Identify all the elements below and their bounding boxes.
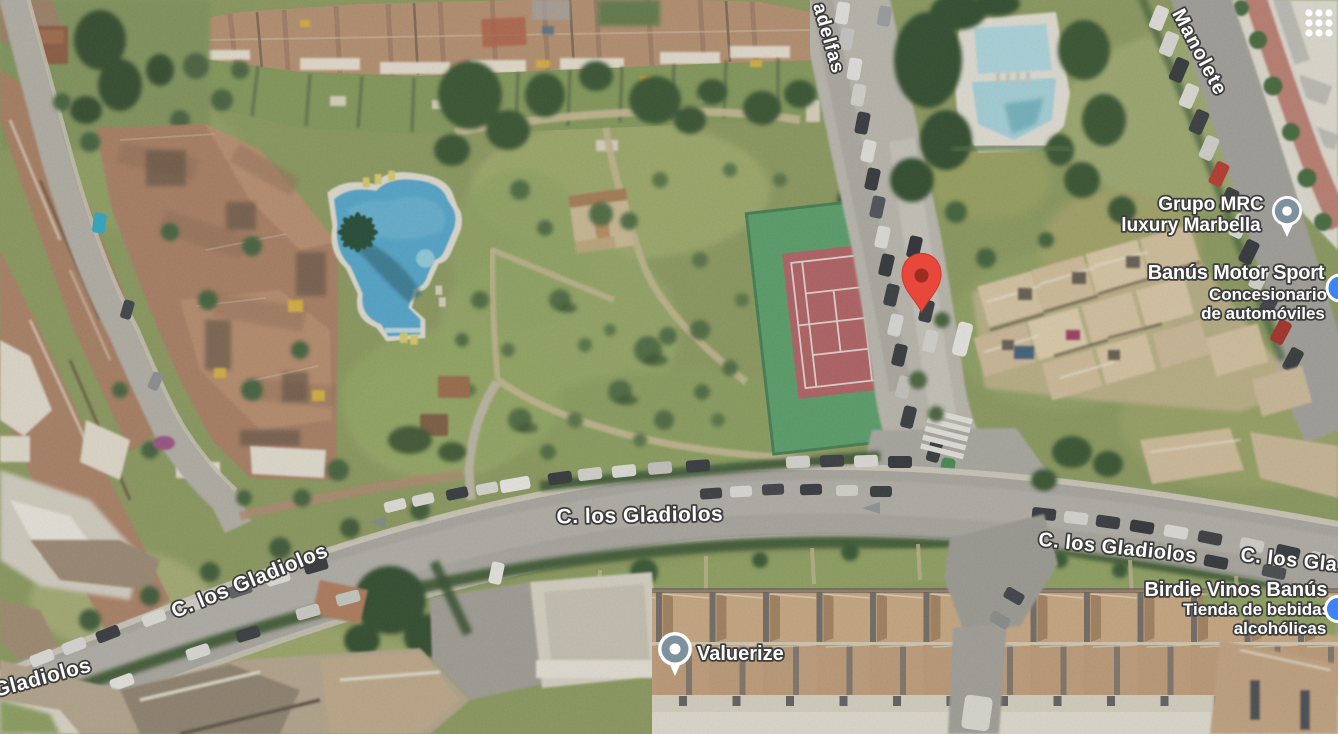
svg-text:luxury Marbella: luxury Marbella — [1121, 215, 1261, 236]
svg-text:alcohólicas: alcohólicas — [1234, 619, 1327, 638]
svg-text:Birdie Vinos Banús: Birdie Vinos Banús — [1144, 579, 1327, 601]
svg-text:Grupo MRC: Grupo MRC — [1158, 194, 1264, 215]
svg-text:Banús Motor Sport: Banús Motor Sport — [1148, 262, 1325, 284]
svg-text:Valuerize: Valuerize — [697, 643, 784, 665]
svg-text:de automóviles: de automóviles — [1201, 304, 1325, 323]
svg-text:Concesionario: Concesionario — [1209, 285, 1327, 304]
svg-text:C. los Gladiolos: C. los Gladiolos — [556, 503, 723, 529]
svg-text:Tienda de bebidas: Tienda de bebidas — [1183, 600, 1331, 619]
